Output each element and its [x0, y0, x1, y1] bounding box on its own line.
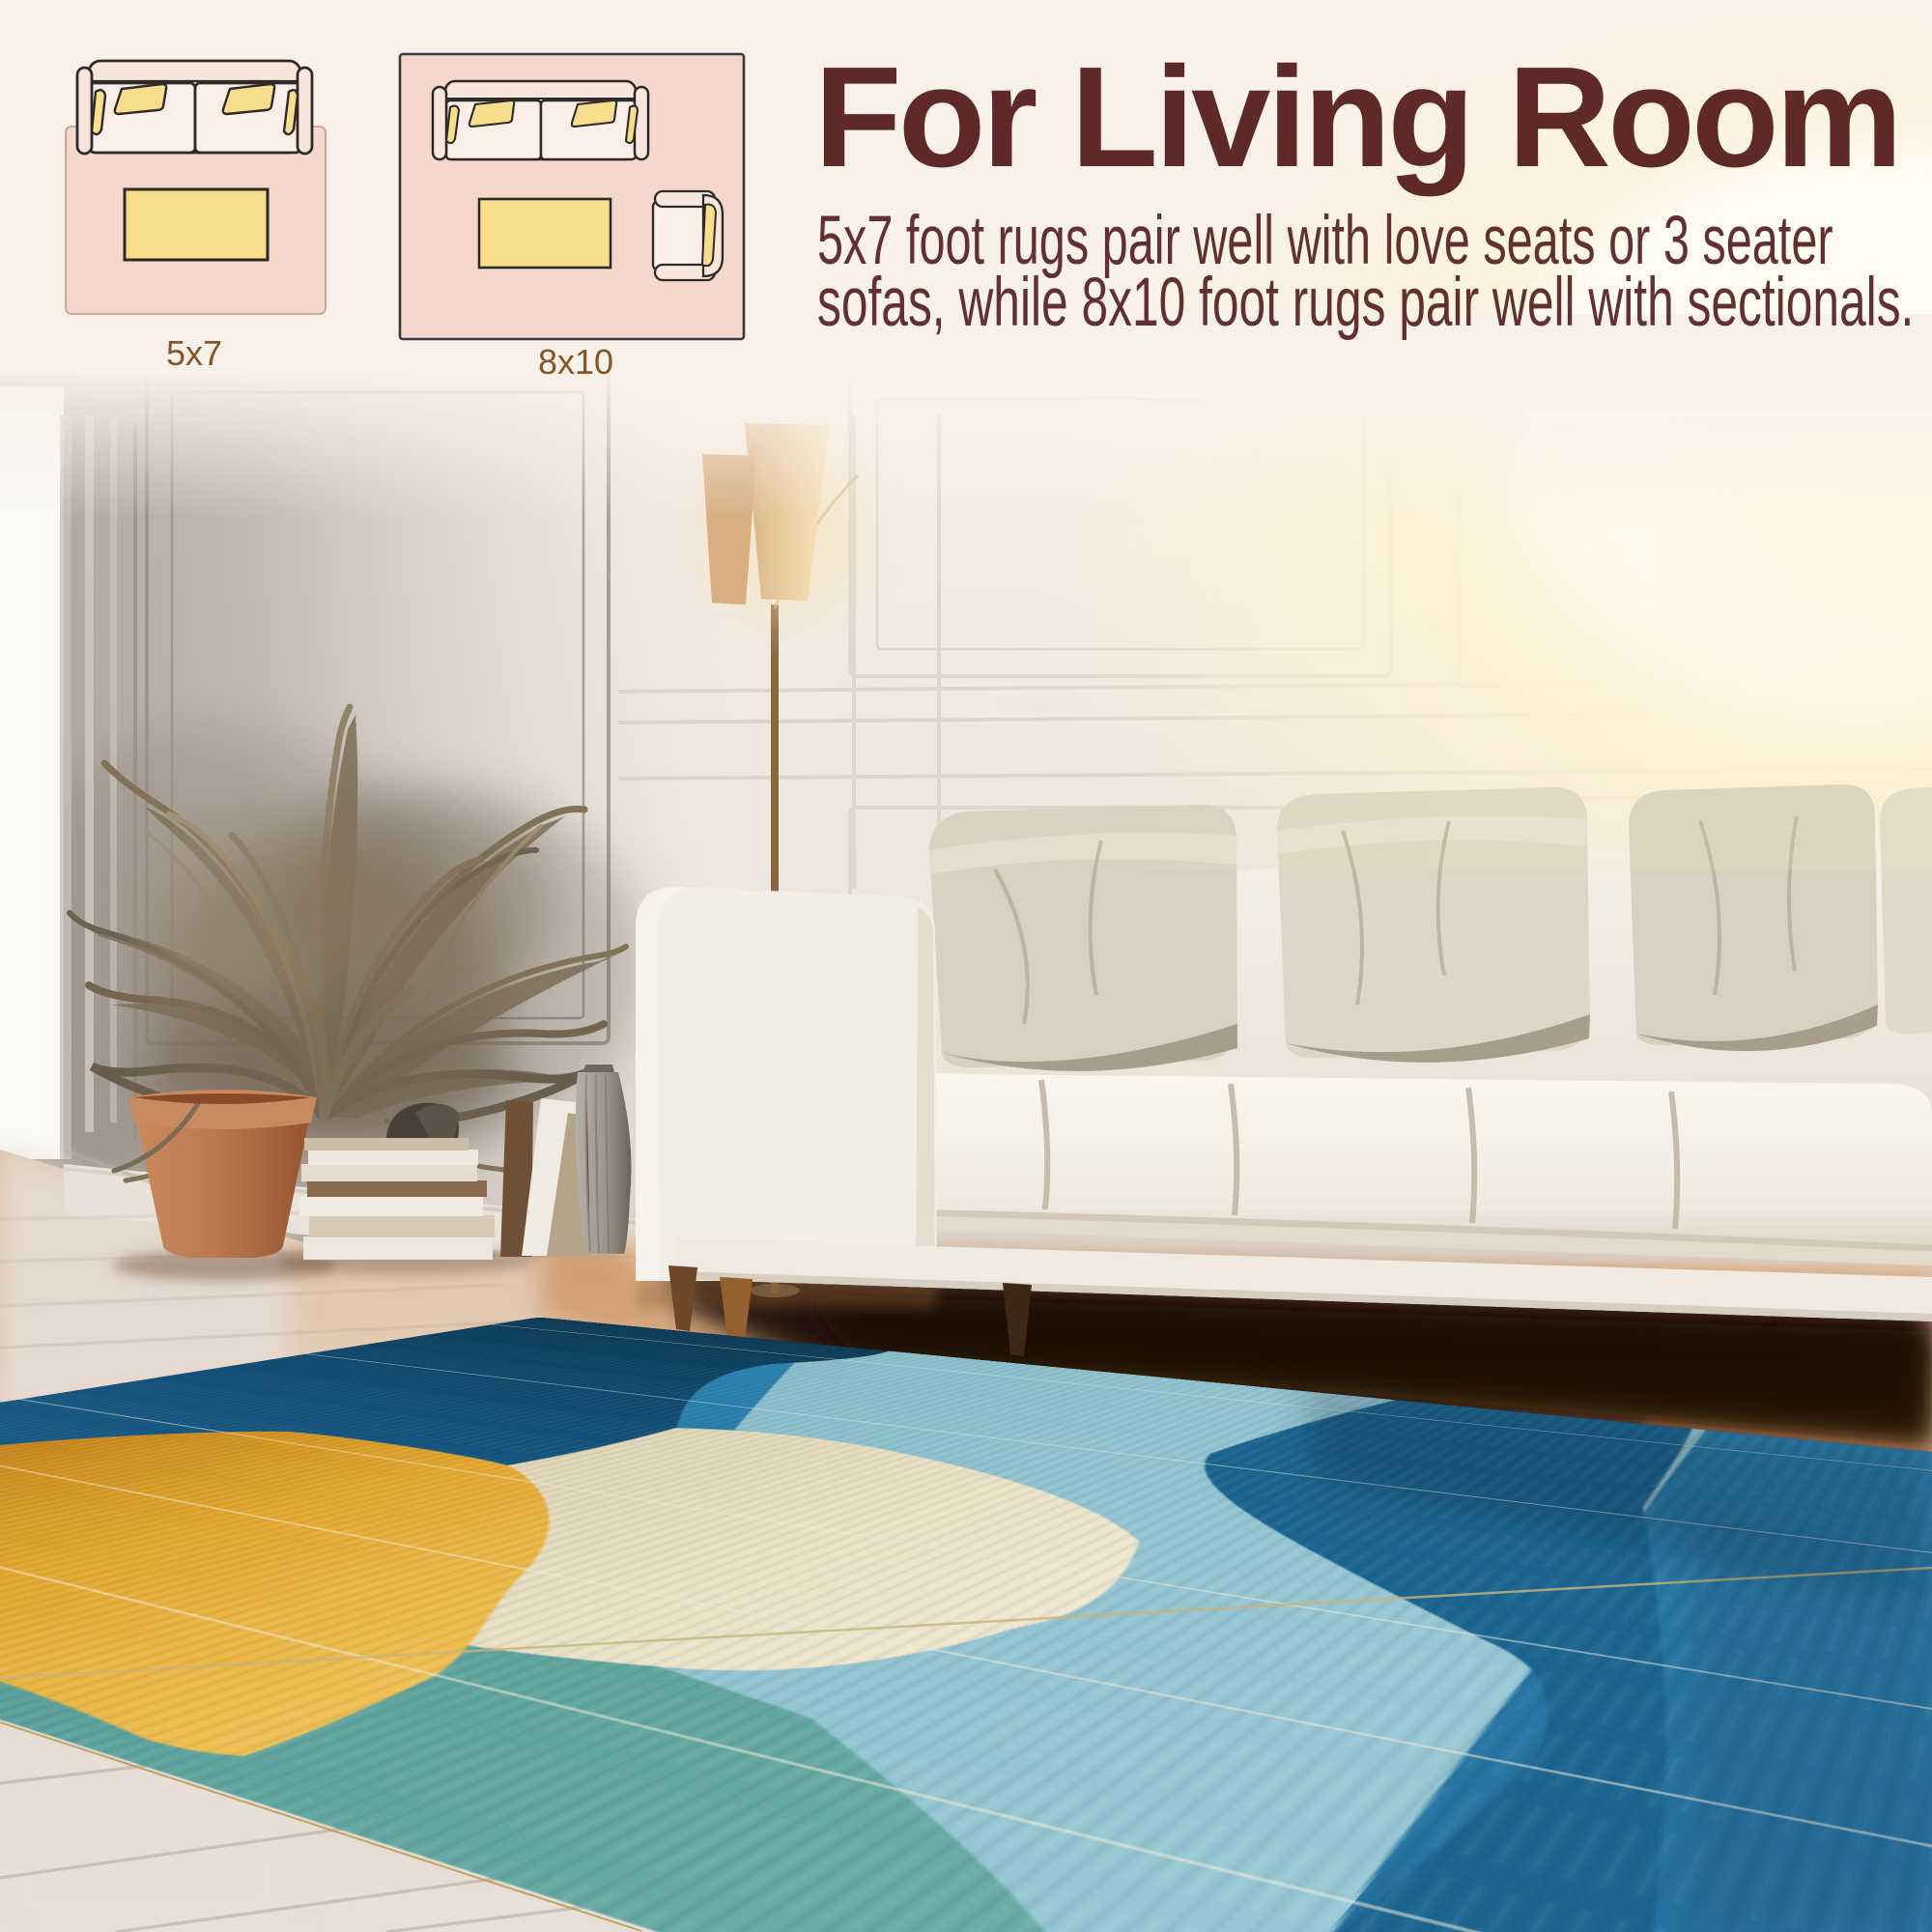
svg-text:5x7: 5x7 [166, 333, 222, 367]
svg-text:8x10: 8x10 [538, 342, 613, 382]
